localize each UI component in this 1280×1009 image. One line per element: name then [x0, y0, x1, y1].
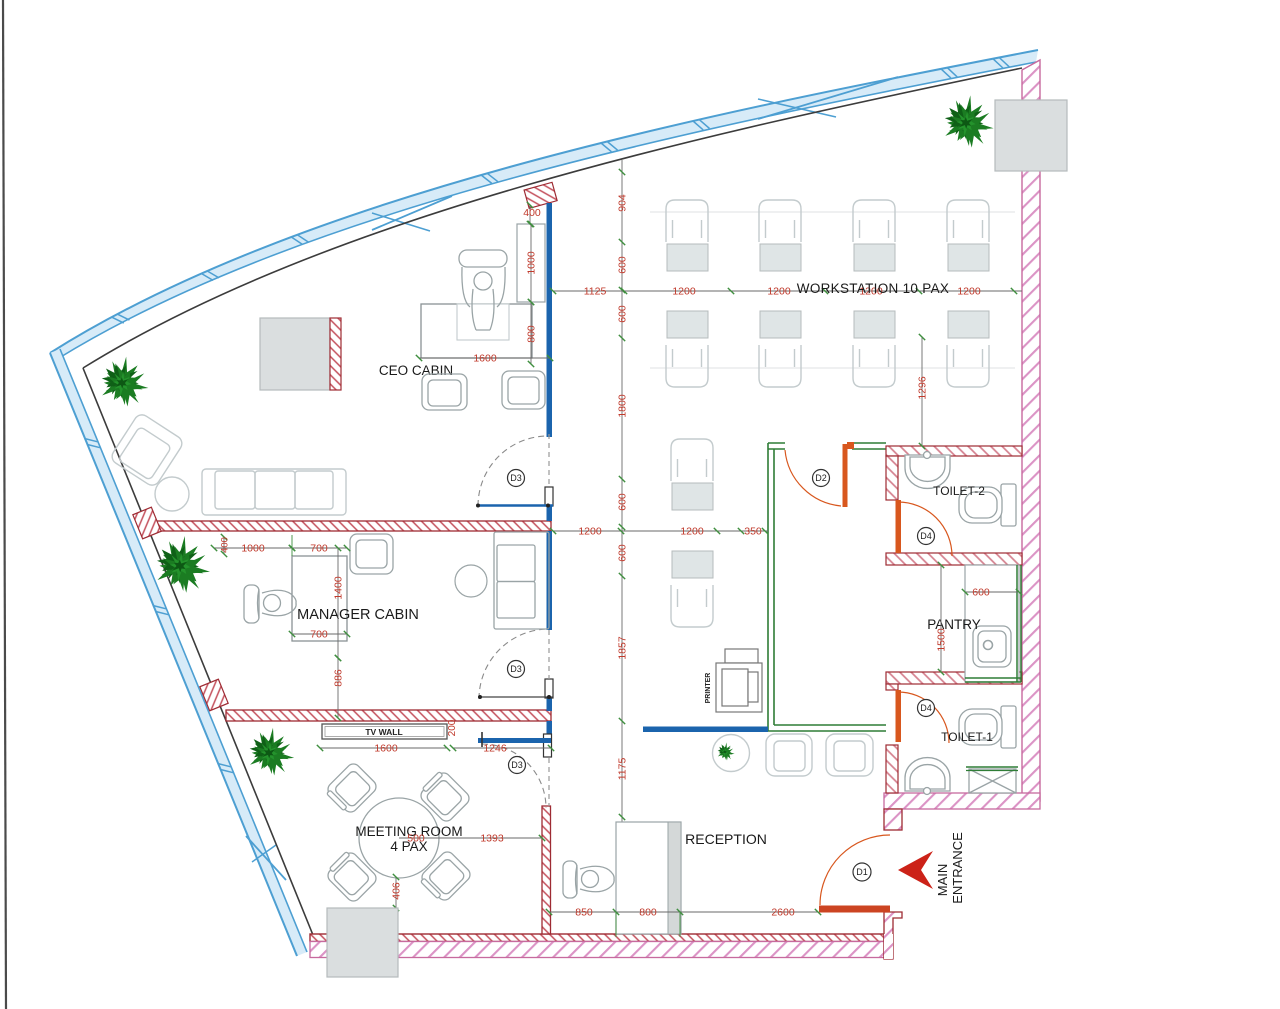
svg-text:1200: 1200: [957, 286, 981, 298]
svg-text:ENTRANCE: ENTRANCE: [950, 832, 965, 904]
svg-text:RECEPTION: RECEPTION: [685, 831, 767, 847]
svg-text:600: 600: [617, 493, 629, 511]
svg-text:1600: 1600: [473, 353, 497, 365]
svg-text:200: 200: [447, 719, 458, 736]
svg-text:1200: 1200: [578, 526, 602, 538]
svg-text:1400: 1400: [333, 576, 345, 600]
svg-text:1000: 1000: [526, 251, 538, 275]
svg-text:1200: 1200: [672, 286, 696, 298]
svg-text:1600: 1600: [374, 743, 398, 755]
svg-text:TV WALL: TV WALL: [365, 727, 402, 737]
svg-text:MANAGER CABIN: MANAGER CABIN: [297, 607, 419, 623]
svg-text:600: 600: [617, 256, 629, 274]
svg-text:904: 904: [617, 194, 629, 212]
svg-text:1200: 1200: [767, 286, 791, 298]
svg-text:1246: 1246: [483, 743, 507, 755]
svg-text:MAIN: MAIN: [935, 864, 950, 897]
svg-text:1200: 1200: [680, 526, 704, 538]
svg-text:1000: 1000: [241, 543, 265, 555]
svg-text:600: 600: [617, 544, 629, 562]
svg-text:D3: D3: [510, 473, 522, 483]
svg-text:500: 500: [407, 833, 425, 845]
svg-text:600: 600: [972, 587, 990, 599]
svg-text:406: 406: [391, 882, 403, 900]
svg-text:1125: 1125: [584, 286, 607, 298]
svg-text:600: 600: [617, 305, 629, 323]
svg-text:1500: 1500: [936, 628, 948, 652]
svg-text:TOILET-1: TOILET-1: [941, 730, 993, 744]
svg-text:850: 850: [575, 907, 593, 919]
svg-text:WORKSTATION 10 PAX: WORKSTATION 10 PAX: [797, 281, 949, 296]
svg-text:2600: 2600: [771, 907, 795, 919]
svg-text:1175: 1175: [617, 758, 629, 781]
svg-text:700: 700: [310, 629, 328, 641]
svg-text:800: 800: [526, 325, 538, 343]
svg-text:D1: D1: [856, 867, 868, 877]
svg-text:D3: D3: [510, 664, 522, 674]
svg-text:1296: 1296: [917, 376, 929, 400]
svg-text:1800: 1800: [617, 394, 629, 418]
svg-text:D4: D4: [920, 531, 932, 541]
svg-text:350: 350: [744, 526, 762, 538]
svg-text:700: 700: [310, 543, 328, 555]
svg-text:TOILET-2: TOILET-2: [933, 484, 985, 498]
svg-text:D4: D4: [920, 703, 932, 713]
svg-text:CEO CABIN: CEO CABIN: [379, 363, 453, 378]
svg-text:400: 400: [220, 537, 231, 553]
svg-text:D2: D2: [815, 473, 827, 483]
svg-text:1857: 1857: [617, 636, 629, 660]
svg-text:400: 400: [523, 207, 541, 219]
svg-text:886: 886: [333, 669, 345, 687]
svg-text:800: 800: [639, 907, 657, 919]
svg-text:PRINTER: PRINTER: [705, 673, 712, 704]
svg-text:D3: D3: [511, 760, 523, 770]
svg-text:1393: 1393: [480, 833, 504, 845]
